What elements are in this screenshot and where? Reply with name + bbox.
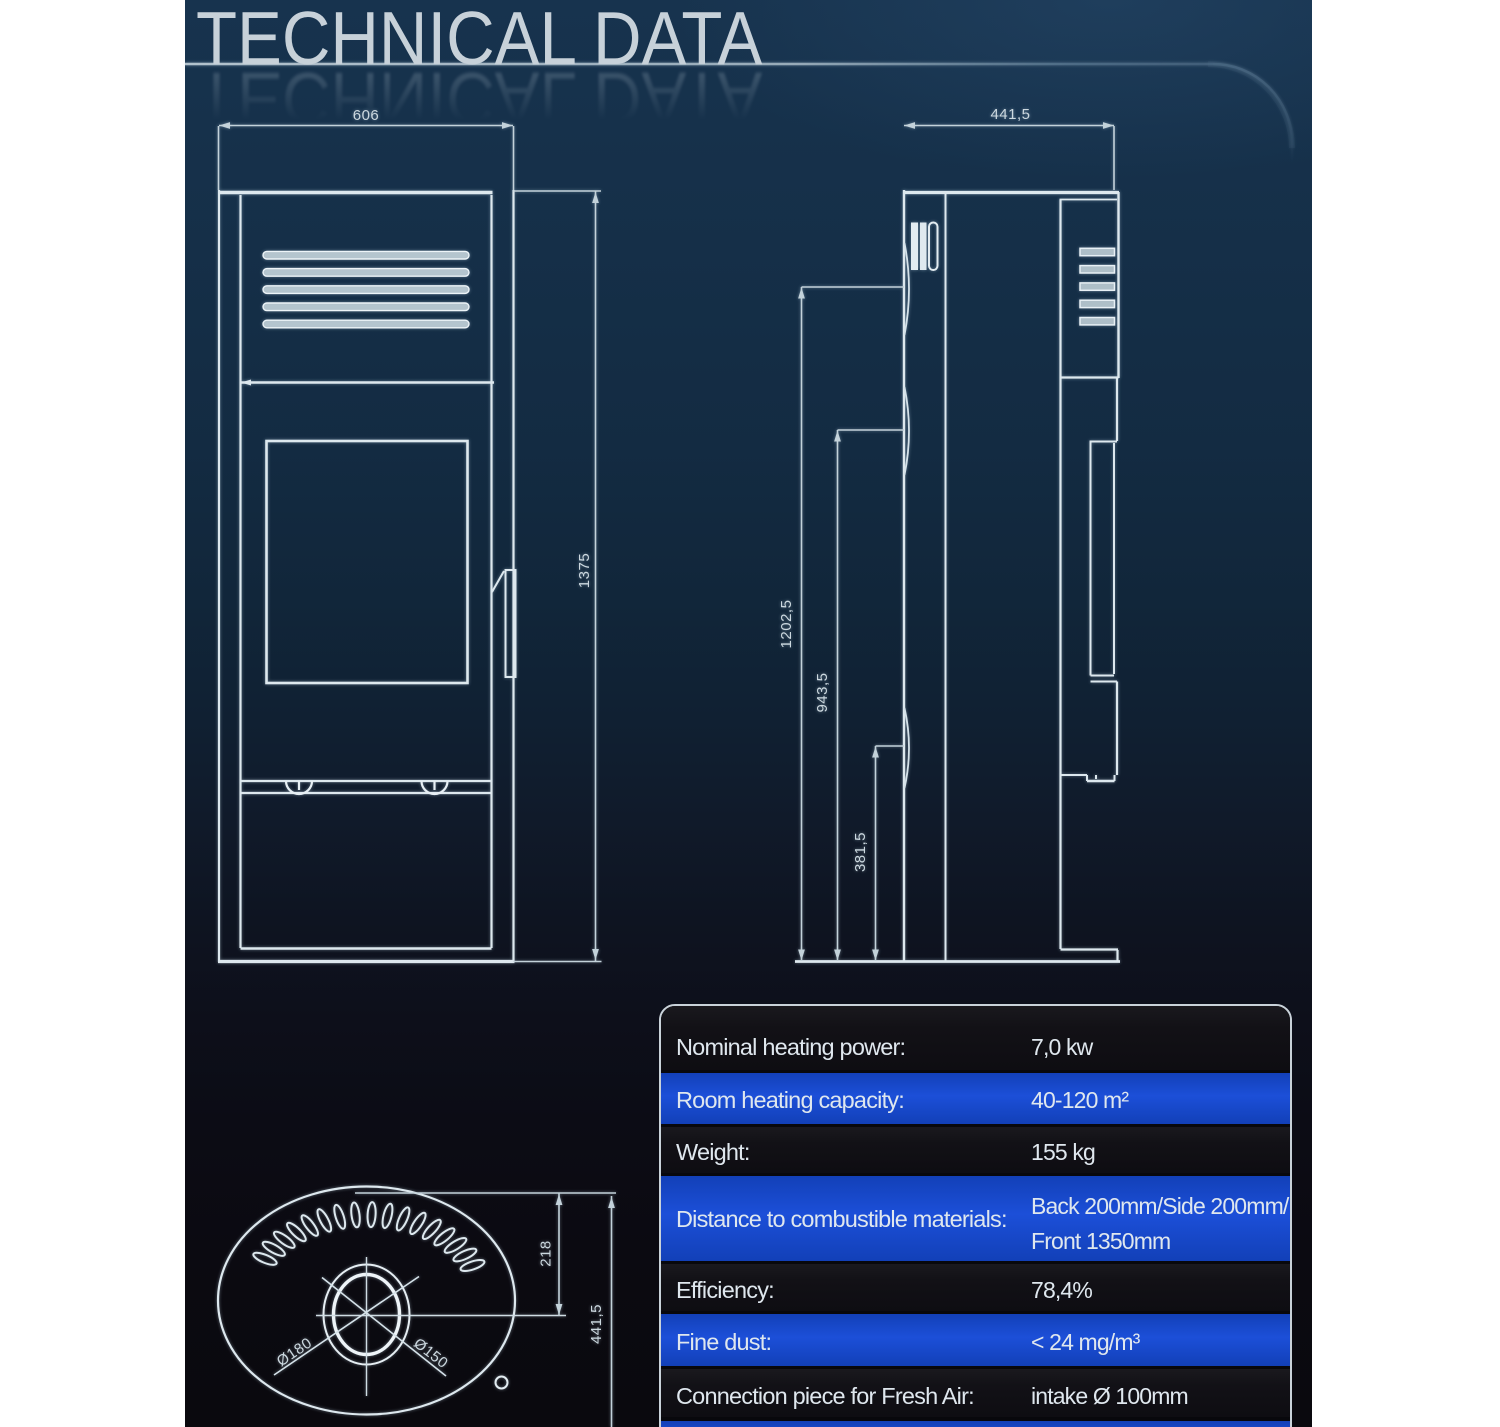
svg-text:1375: 1375 bbox=[576, 553, 593, 588]
svg-text:Ø180: Ø180 bbox=[274, 1334, 316, 1370]
svg-text:381,5: 381,5 bbox=[852, 832, 869, 872]
svg-text:1202,5: 1202,5 bbox=[778, 600, 795, 649]
svg-text:943,5: 943,5 bbox=[814, 672, 831, 712]
svg-text:218: 218 bbox=[538, 1240, 555, 1267]
svg-text:441,5: 441,5 bbox=[990, 106, 1030, 123]
svg-text:441,5: 441,5 bbox=[588, 1304, 605, 1344]
